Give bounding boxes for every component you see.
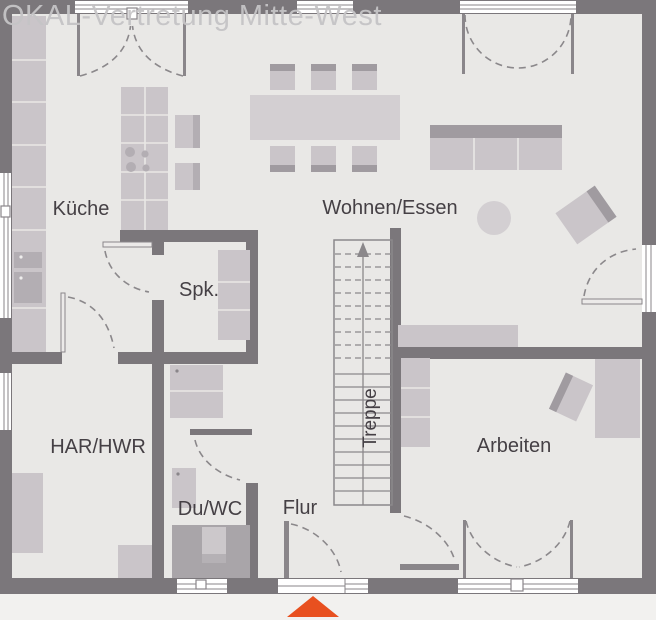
label-treppe: Treppe xyxy=(360,388,381,448)
window-handle-icon xyxy=(511,579,523,591)
window-handle-icon xyxy=(1,206,10,217)
wall-har-duwc-divider xyxy=(152,300,164,578)
chair xyxy=(352,64,377,90)
window-handle-icon xyxy=(196,580,206,589)
label-spk: Spk. xyxy=(179,279,219,301)
chair xyxy=(270,64,295,90)
entrance-door-unit xyxy=(278,579,368,593)
door-leaf xyxy=(571,14,574,74)
wall-har-kueche-left xyxy=(12,352,62,364)
window-french-door-top-right xyxy=(460,1,576,13)
door-leaf xyxy=(284,521,289,578)
floor-area xyxy=(6,7,650,587)
wall-duwc-stub xyxy=(190,429,252,435)
sideboard xyxy=(398,325,518,347)
office-wardrobe xyxy=(595,359,640,438)
chair xyxy=(311,146,336,172)
floor-plan-canvas: Küche Wohnen/Essen Spk. HAR/HWR Du/WC Fl… xyxy=(0,0,656,620)
wall-har-kueche-right xyxy=(118,352,258,364)
kitchen-island xyxy=(121,87,168,230)
label-kueche: Küche xyxy=(53,198,110,220)
label-har-hwr: HAR/HWR xyxy=(50,436,146,458)
label-du-wc: Du/WC xyxy=(178,498,242,520)
office-shelf xyxy=(401,358,430,447)
wall-arbeiten-north xyxy=(390,347,656,359)
chair xyxy=(270,146,295,172)
oven-icon xyxy=(14,252,42,268)
round-rug xyxy=(477,201,511,235)
floor-plan: Küche Wohnen/Essen Spk. HAR/HWR Du/WC Fl… xyxy=(0,0,656,620)
sofa xyxy=(430,125,562,170)
label-wohnen-essen: Wohnen/Essen xyxy=(322,197,457,219)
door-leaf xyxy=(582,299,642,304)
shower xyxy=(172,525,250,578)
dining-table xyxy=(250,95,400,140)
window-french-bottom-arbeiten xyxy=(458,579,578,593)
utility-cabinet xyxy=(118,545,152,578)
chair xyxy=(352,146,377,172)
pantry-shelf xyxy=(218,250,250,340)
window-terrace-door-right xyxy=(642,245,656,312)
utility-cabinet xyxy=(12,473,43,553)
label-flur: Flur xyxy=(283,497,318,519)
door-leaf xyxy=(463,520,466,578)
oven-icon xyxy=(14,272,42,303)
door-leaf xyxy=(400,564,459,570)
door-leaf xyxy=(61,293,65,352)
washer-dryer xyxy=(170,365,223,418)
door-leaf xyxy=(462,14,465,74)
window-left-small xyxy=(0,373,11,430)
label-arbeiten: Arbeiten xyxy=(477,435,552,457)
door-leaf xyxy=(103,242,152,247)
wall-spk-north xyxy=(120,230,258,242)
door-leaf xyxy=(570,520,573,578)
window-bottom-duwc xyxy=(177,579,227,593)
window-left-tall xyxy=(0,173,11,318)
watermark-text: OKAL-Vertretung Mitte-West xyxy=(2,0,382,32)
kitchen-counter xyxy=(12,16,46,352)
chair xyxy=(311,64,336,90)
